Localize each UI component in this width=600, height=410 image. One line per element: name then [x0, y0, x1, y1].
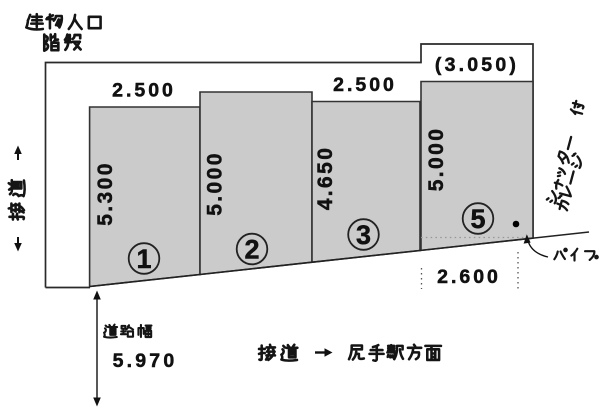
svg-text:5.300: 5.300	[94, 161, 117, 226]
svg-text:2.600: 2.600	[437, 266, 501, 288]
svg-text:1: 1	[136, 244, 151, 274]
svg-text:5.970: 5.970	[113, 350, 178, 372]
svg-text:2: 2	[244, 235, 259, 265]
svg-text:2.500: 2.500	[333, 74, 397, 96]
svg-text:4.650: 4.650	[314, 146, 337, 211]
svg-text:(3.050): (3.050)	[435, 54, 519, 76]
svg-text:3: 3	[356, 220, 371, 250]
svg-text:5.000: 5.000	[425, 127, 448, 192]
svg-text:5: 5	[470, 204, 485, 234]
svg-text:2.500: 2.500	[112, 80, 176, 102]
svg-text:5.000: 5.000	[204, 151, 227, 216]
